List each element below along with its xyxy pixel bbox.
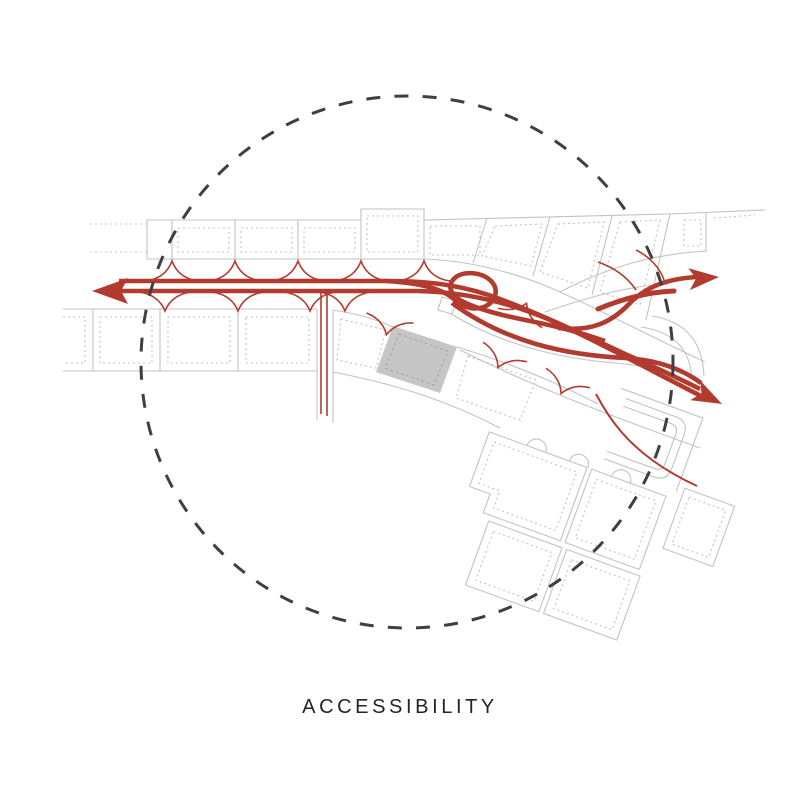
side-street-route <box>321 293 327 416</box>
route-branch-northeast <box>558 277 696 329</box>
site-building <box>376 326 457 393</box>
accessibility-diagram: ACCESSIBILITY <box>0 0 800 800</box>
diagram-canvas <box>0 0 800 800</box>
caption: ACCESSIBILITY <box>0 696 800 719</box>
